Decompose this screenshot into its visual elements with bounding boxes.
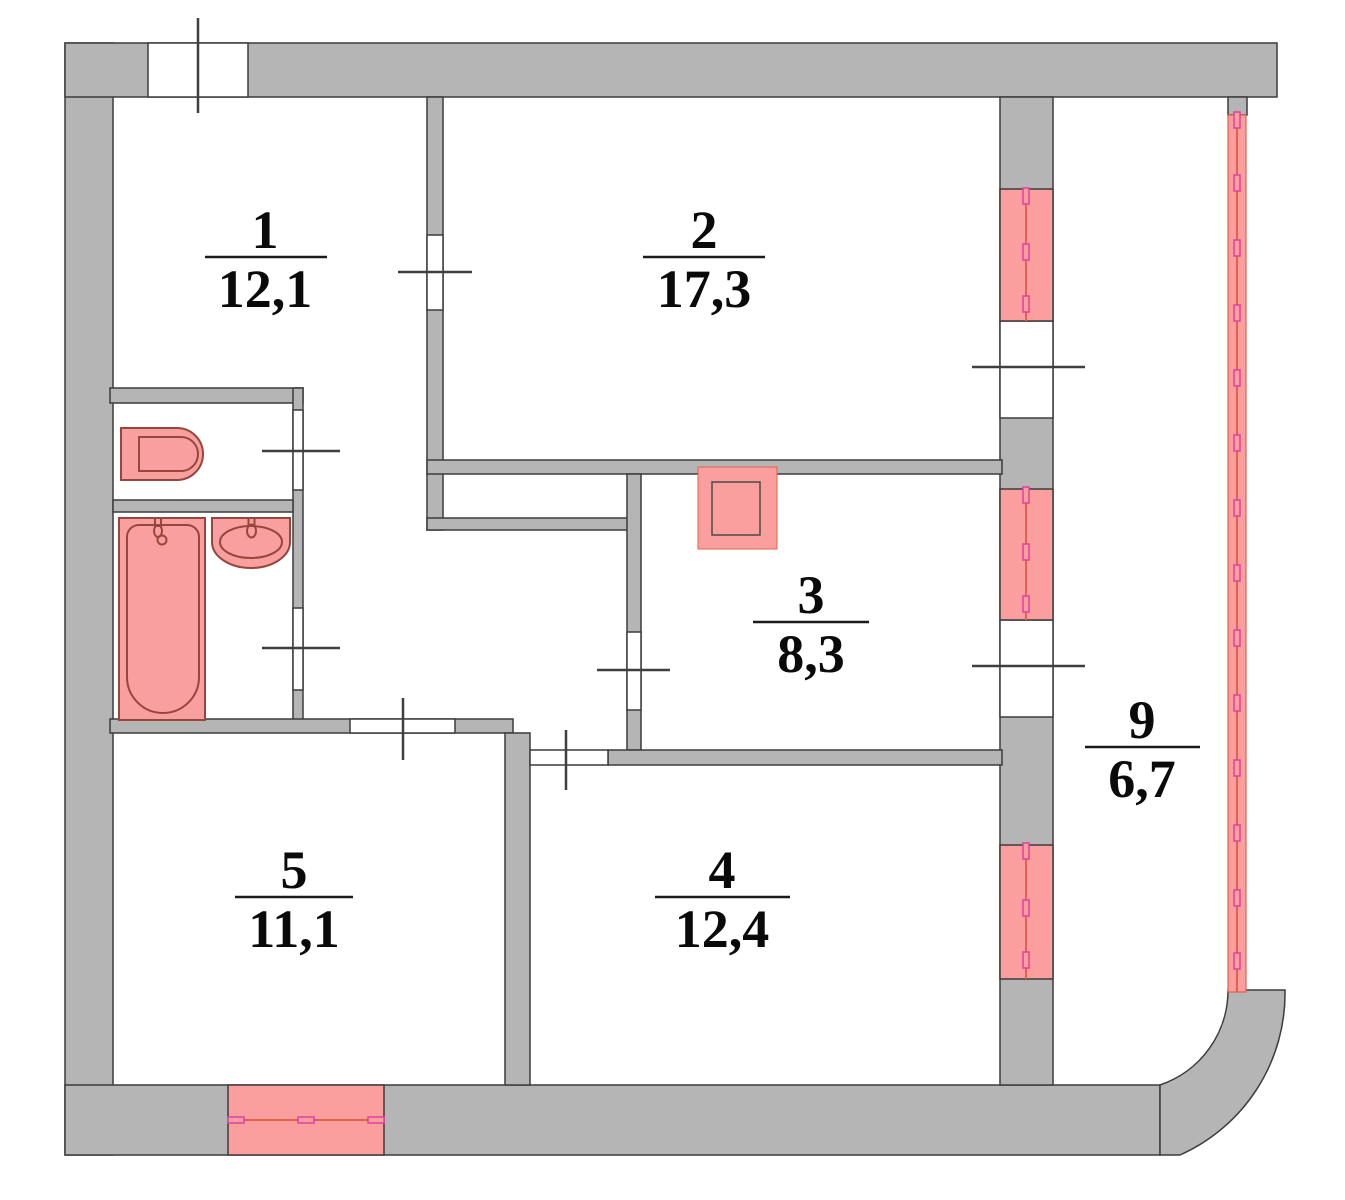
room-2-number: 2 bbox=[691, 200, 718, 260]
room-3-area: 8,3 bbox=[777, 624, 845, 684]
room-3-number: 3 bbox=[798, 565, 825, 625]
sink-icon bbox=[212, 518, 290, 568]
balcony-door-kitchen bbox=[1000, 620, 1053, 717]
wall-wc-bath-divider bbox=[113, 500, 293, 512]
room-5-area: 11,1 bbox=[248, 899, 340, 959]
room-1-area: 12,1 bbox=[218, 259, 313, 319]
balcony-door-room2 bbox=[1000, 321, 1053, 418]
floor-plan: 1 12,1 2 17,3 3 8,3 4 12,4 5 11,1 9 6,7 bbox=[0, 0, 1345, 1200]
room-9-number: 9 bbox=[1129, 690, 1156, 750]
room-5-number: 5 bbox=[281, 840, 308, 900]
floor-plan-canvas: 1 12,1 2 17,3 3 8,3 4 12,4 5 11,1 9 6,7 bbox=[0, 0, 1345, 1200]
wall-closet-bottom bbox=[427, 518, 630, 530]
wall-room1-bottom bbox=[110, 388, 303, 403]
door-opening-room4 bbox=[530, 750, 608, 765]
room-2-area: 17,3 bbox=[657, 259, 752, 319]
wall-room4-room5-divider bbox=[505, 733, 530, 1085]
stove-icon bbox=[698, 467, 777, 549]
wall-left-exterior bbox=[65, 43, 113, 1155]
room-4-number: 4 bbox=[709, 840, 736, 900]
wall-room4-top bbox=[608, 750, 1002, 765]
room-1-number: 1 bbox=[252, 200, 279, 260]
room-4-area: 12,4 bbox=[675, 899, 770, 959]
toilet-icon bbox=[121, 428, 203, 480]
room-9-area: 6,7 bbox=[1108, 749, 1176, 809]
bathtub-icon bbox=[119, 518, 205, 720]
